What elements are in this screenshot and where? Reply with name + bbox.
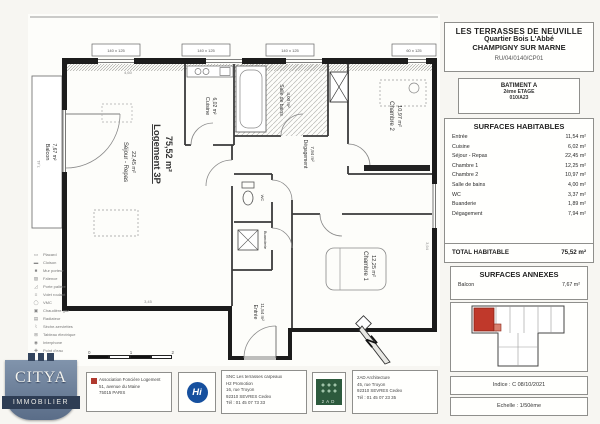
lot-label: 010/A23	[459, 95, 579, 101]
legend-label: Volet roulant	[43, 291, 65, 299]
surface-row: Cuisine6,02 m²	[445, 143, 593, 153]
afl-city: 75015 PARIS	[99, 390, 168, 397]
legend-label: Tableau électrique	[43, 331, 75, 339]
legend-item: ◿Porte palière	[32, 283, 98, 291]
indice-box: Indice : C 08/10/2021	[450, 376, 588, 395]
citya-logo: CITYA IMMOBILIER	[5, 360, 77, 420]
chambre2-label: Chambre 2	[388, 101, 394, 131]
scale-segment	[130, 355, 151, 359]
chambre1-label: Chambre 1	[362, 251, 368, 281]
key-plan-highlighted-unit	[474, 308, 494, 331]
legend-label: Mur porteur	[43, 267, 64, 275]
total-habitable-box: TOTAL HABITABLE75,52 m²	[444, 243, 594, 263]
graphic-scale-bar: 0 1 2	[88, 350, 174, 359]
cuisine-label: Cuisine	[204, 97, 210, 115]
surface-label: Dégagement	[452, 210, 482, 220]
surfaces-annexes-title: SURFACES ANNEXES	[451, 267, 587, 281]
aad-logo-icon: 2AD	[316, 379, 342, 405]
legend-symbol: ▬	[32, 259, 40, 267]
hi-logo-box: Hi	[178, 372, 216, 412]
surface-value: 3,37 m²	[568, 191, 586, 201]
surface-row: Entrée11,54 m²	[445, 133, 593, 143]
legend-label: Cloison	[43, 259, 56, 267]
surfaces-habitables-box: SURFACES HABITABLES Entrée11,54 m² Cuisi…	[444, 118, 594, 244]
legend-symbol: ▣	[32, 307, 40, 315]
surface-value: 11,54 m²	[565, 133, 586, 143]
surface-value: 1,89 m²	[568, 200, 586, 210]
logement-area: 75,52 m²	[164, 136, 174, 172]
echelle-box: Echelle : 1/50ème	[450, 397, 588, 416]
snc-phone: Tél : 01 45 07 73 33	[226, 400, 302, 407]
afl-name: Association Foncière Logement	[99, 377, 168, 384]
project-title-box: LES TERRASSES DE NEUVILLE Quartier Bois …	[444, 22, 594, 72]
legend-item: ◉Interphone	[32, 339, 98, 347]
surface-label: Entrée	[452, 133, 468, 143]
aad-logo-dots	[320, 382, 338, 394]
key-plan-box	[450, 302, 588, 372]
legend-item: ▬Cloison	[32, 259, 98, 267]
legend-symbol: ◯	[32, 299, 40, 307]
dim-label: 3,45	[144, 299, 153, 304]
legend-item: ⊞Tableau électrique	[32, 331, 98, 339]
aad-logo-box: 2AD	[312, 372, 346, 412]
dim-label: 4,60	[124, 70, 133, 75]
project-quarter: Quartier Bois L'Abbé	[445, 36, 593, 43]
surface-row: Dégagement7,94 m²	[445, 210, 593, 220]
surface-value: 7,94 m²	[568, 210, 586, 220]
surfaces-habitables-title: SURFACES HABITABLES	[445, 119, 593, 133]
legend-item: ⌇Sèche-serviettes	[32, 323, 98, 331]
surface-label: Buanderie	[452, 200, 476, 210]
legend-label: Sèche-serviettes	[43, 323, 73, 331]
legend-label: Placard	[43, 251, 57, 259]
balcony-label: Balcon	[44, 144, 50, 161]
legend-item: ▤Radiateur	[32, 315, 98, 323]
buanderie-label: Buanderie	[263, 231, 268, 250]
window-size-label: 140 x 125	[281, 48, 299, 53]
legend-label: Radiateur	[43, 315, 60, 323]
surface-label: WC	[452, 191, 461, 201]
legend-label: Faïence	[43, 275, 57, 283]
batiment-box: BATIMENT A 2ème ETAGE 010/A23	[458, 78, 580, 114]
surface-label: Salle de bains	[452, 181, 485, 191]
balcony-area: 7,67 m²	[51, 144, 57, 161]
logement-title: Logement 3P	[151, 124, 162, 184]
plan-legend: ▭Placard ▬Cloison ■Mur porteur ▨Faïence …	[32, 251, 98, 355]
surface-value: 10,97 m²	[565, 171, 586, 181]
annexe-row: Balcon7,67 m²	[451, 281, 587, 291]
legend-symbol: ⊞	[32, 331, 40, 339]
project-reference: RU/04/0140/CP01	[445, 56, 593, 62]
surface-row: Séjour - Repas22,45 m²	[445, 152, 593, 162]
sdb-area: 4,00 m²	[286, 92, 291, 108]
surface-row: WC3,37 m²	[445, 191, 593, 201]
surface-label: Cuisine	[452, 143, 470, 153]
plan-sheet: 140 x 125 140 x 125 140 x 125 60 x 125	[0, 0, 600, 424]
legend-symbol: ⌇	[32, 323, 40, 331]
chambre1-area: 12,25 m²	[370, 255, 376, 277]
echelle-text: Echelle : 1/50ème	[451, 398, 587, 415]
sdb-label: Salle de bains	[278, 84, 284, 116]
wc-label: WC	[260, 195, 265, 202]
sejour-label: Séjour - Repas	[122, 142, 128, 182]
annexe-value: 7,67 m²	[562, 281, 580, 291]
legend-label: Interphone	[43, 339, 62, 347]
project-city: CHAMPIGNY SUR MARNE	[445, 43, 593, 52]
surface-value: 22,45 m²	[565, 152, 586, 162]
aad-phone: Tél : 01 45 07 23 35	[357, 395, 433, 402]
entree-area: 11,54 m²	[260, 303, 265, 321]
legend-symbol: ▤	[32, 315, 40, 323]
legend-item: ≡Volet roulant	[32, 291, 98, 299]
surface-label: Chambre 1	[452, 162, 478, 172]
surface-row: Chambre 210,97 m²	[445, 171, 593, 181]
legend-symbol: ≡	[32, 291, 40, 299]
legend-symbol: ■	[32, 267, 40, 275]
surface-value: 6,02 m²	[568, 143, 586, 153]
citya-subtitle: IMMOBILIER	[2, 396, 80, 409]
hi-logo-icon: Hi	[187, 382, 208, 403]
legend-item: ◯VMC	[32, 299, 98, 307]
dim-label: 7,41	[36, 159, 41, 168]
degagement-area: 7,94 m²	[310, 146, 315, 162]
window-size-label: 60 x 125	[406, 48, 422, 53]
entree-label: Entrée	[252, 305, 258, 320]
scale-segment	[151, 355, 172, 359]
legend-label: VMC	[43, 299, 52, 307]
annexe-label: Balcon	[458, 281, 474, 291]
legend-item: ▣Chaudière gaz	[32, 307, 98, 315]
window-size-label: 140 x 125	[107, 48, 125, 53]
legend-symbol: ▨	[32, 275, 40, 283]
degagement-label: Dégagement	[302, 140, 308, 169]
total-label: TOTAL HABITABLE	[452, 244, 509, 262]
citya-crown-icon	[28, 353, 54, 361]
legend-symbol: ◿	[32, 283, 40, 291]
legend-item: ▭Placard	[32, 251, 98, 259]
window-size-label: 140 x 125	[197, 48, 215, 53]
surface-label: Chambre 2	[452, 171, 478, 181]
afl-address-box: Association Foncière Logement 51, avenue…	[86, 372, 172, 412]
surface-value: 12,25 m²	[565, 162, 586, 172]
surface-value: 4,00 m²	[568, 181, 586, 191]
cuisine-area: 6,02 m²	[211, 98, 217, 115]
legend-label: Chaudière gaz	[43, 307, 69, 315]
citya-name: CITYA	[5, 360, 77, 387]
surface-label: Séjour - Repas	[452, 152, 487, 162]
aad-logo-text: 2AD	[316, 399, 342, 404]
legend-item: ▨Faïence	[32, 275, 98, 283]
surface-row: Salle de bains4,00 m²	[445, 181, 593, 191]
surface-row: Buanderie1,89 m²	[445, 200, 593, 210]
legend-label: Porte palière	[43, 283, 66, 291]
aad-address-box: 2AD Architecture 45, rue Troyon 92310 SE…	[352, 370, 438, 414]
indice-text: Indice : C 08/10/2021	[451, 377, 587, 394]
total-value: 75,52 m²	[561, 244, 586, 262]
legend-symbol: ▭	[32, 251, 40, 259]
legend-symbol: ◉	[32, 339, 40, 347]
afl-logo-icon	[91, 378, 97, 384]
project-title: LES TERRASSES DE NEUVILLE	[445, 23, 593, 36]
batiment-label: BATIMENT A	[459, 79, 579, 89]
legend-item: ■Mur porteur	[32, 267, 98, 275]
surface-row: Chambre 112,25 m²	[445, 162, 593, 172]
key-plan-drawing	[451, 303, 587, 371]
chambre2-area: 10,97 m²	[396, 105, 402, 127]
surfaces-annexes-box: SURFACES ANNEXES Balcon7,67 m²	[450, 266, 588, 300]
sejour-area: 22,45 m²	[130, 151, 136, 173]
dim-label: 3,94	[425, 242, 430, 251]
scale-segment	[109, 355, 130, 359]
scale-segment	[88, 355, 109, 359]
snc-address-box: SNC Les terrasses carpeaux H2 Promotion …	[221, 370, 307, 414]
